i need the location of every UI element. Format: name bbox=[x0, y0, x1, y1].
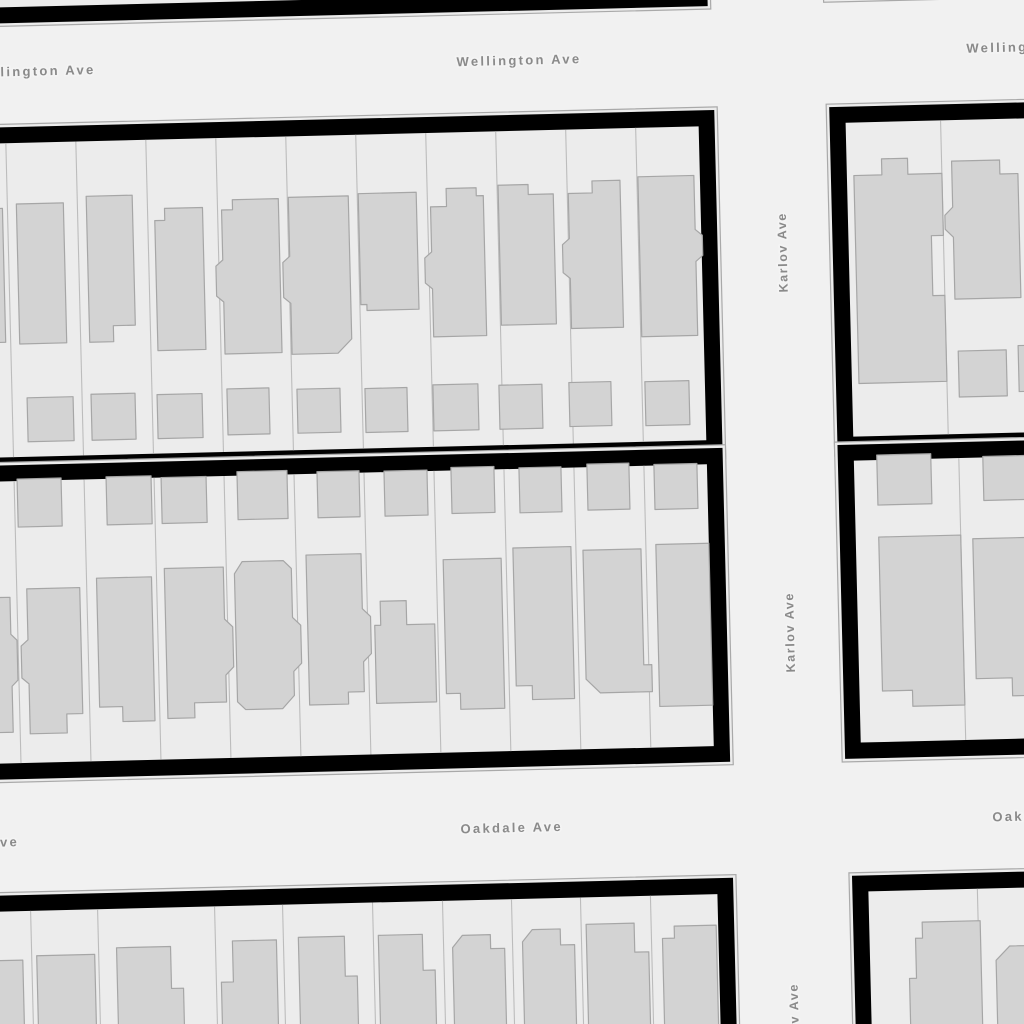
city-block bbox=[849, 866, 1024, 1024]
building bbox=[358, 192, 419, 310]
building bbox=[973, 537, 1024, 697]
street-label: Oakdale Ave bbox=[0, 834, 19, 851]
building bbox=[654, 463, 698, 509]
building bbox=[17, 478, 62, 527]
street-label: Wellington Ave bbox=[0, 62, 96, 80]
building bbox=[297, 388, 341, 433]
street-label: Oakdale Ave bbox=[992, 807, 1024, 824]
street-label: Karlov Ave bbox=[787, 983, 803, 1024]
building bbox=[433, 384, 479, 431]
city-block bbox=[0, 445, 733, 784]
building bbox=[996, 944, 1024, 1024]
building bbox=[451, 466, 495, 513]
city-block bbox=[0, 875, 744, 1024]
building bbox=[86, 195, 136, 342]
map-svg: Wellington AveWellington AveWellington A… bbox=[0, 0, 1024, 1024]
building bbox=[645, 381, 690, 426]
building bbox=[281, 196, 352, 355]
street-label: Wellington Ave bbox=[966, 38, 1024, 56]
building bbox=[587, 463, 630, 510]
building bbox=[16, 203, 66, 344]
building bbox=[877, 454, 932, 505]
building bbox=[638, 175, 705, 336]
building bbox=[958, 350, 1007, 397]
building bbox=[662, 925, 721, 1024]
city-block bbox=[0, 107, 726, 478]
building bbox=[91, 393, 136, 440]
building bbox=[227, 388, 270, 435]
building bbox=[879, 535, 965, 707]
building bbox=[0, 960, 27, 1024]
building bbox=[498, 184, 556, 325]
building bbox=[569, 382, 612, 427]
building bbox=[37, 954, 99, 1024]
building bbox=[365, 388, 408, 433]
building bbox=[106, 476, 152, 525]
building bbox=[154, 207, 205, 350]
building bbox=[164, 567, 235, 719]
building bbox=[20, 588, 84, 734]
city-block bbox=[826, 97, 1024, 456]
building bbox=[583, 549, 652, 694]
street-label: Karlov Ave bbox=[775, 212, 791, 293]
street-label: Karlov Ave bbox=[782, 592, 798, 673]
building bbox=[983, 455, 1024, 500]
building bbox=[161, 476, 207, 523]
building bbox=[1018, 345, 1024, 392]
building bbox=[317, 471, 360, 518]
building bbox=[237, 470, 288, 519]
building bbox=[656, 543, 713, 706]
building bbox=[423, 188, 487, 337]
building bbox=[96, 577, 155, 722]
building bbox=[214, 199, 282, 355]
building bbox=[944, 160, 1021, 300]
building bbox=[157, 394, 203, 439]
street-label: Oakdale Ave bbox=[460, 819, 563, 836]
building bbox=[499, 384, 543, 429]
building bbox=[443, 558, 505, 709]
city-block bbox=[834, 435, 1024, 762]
street-label: Wellington Ave bbox=[456, 51, 581, 69]
map-canvas[interactable]: Wellington AveWellington AveWellington A… bbox=[0, 0, 1024, 1024]
building bbox=[384, 470, 428, 516]
building bbox=[27, 397, 74, 442]
building bbox=[513, 547, 575, 700]
building bbox=[519, 467, 562, 513]
